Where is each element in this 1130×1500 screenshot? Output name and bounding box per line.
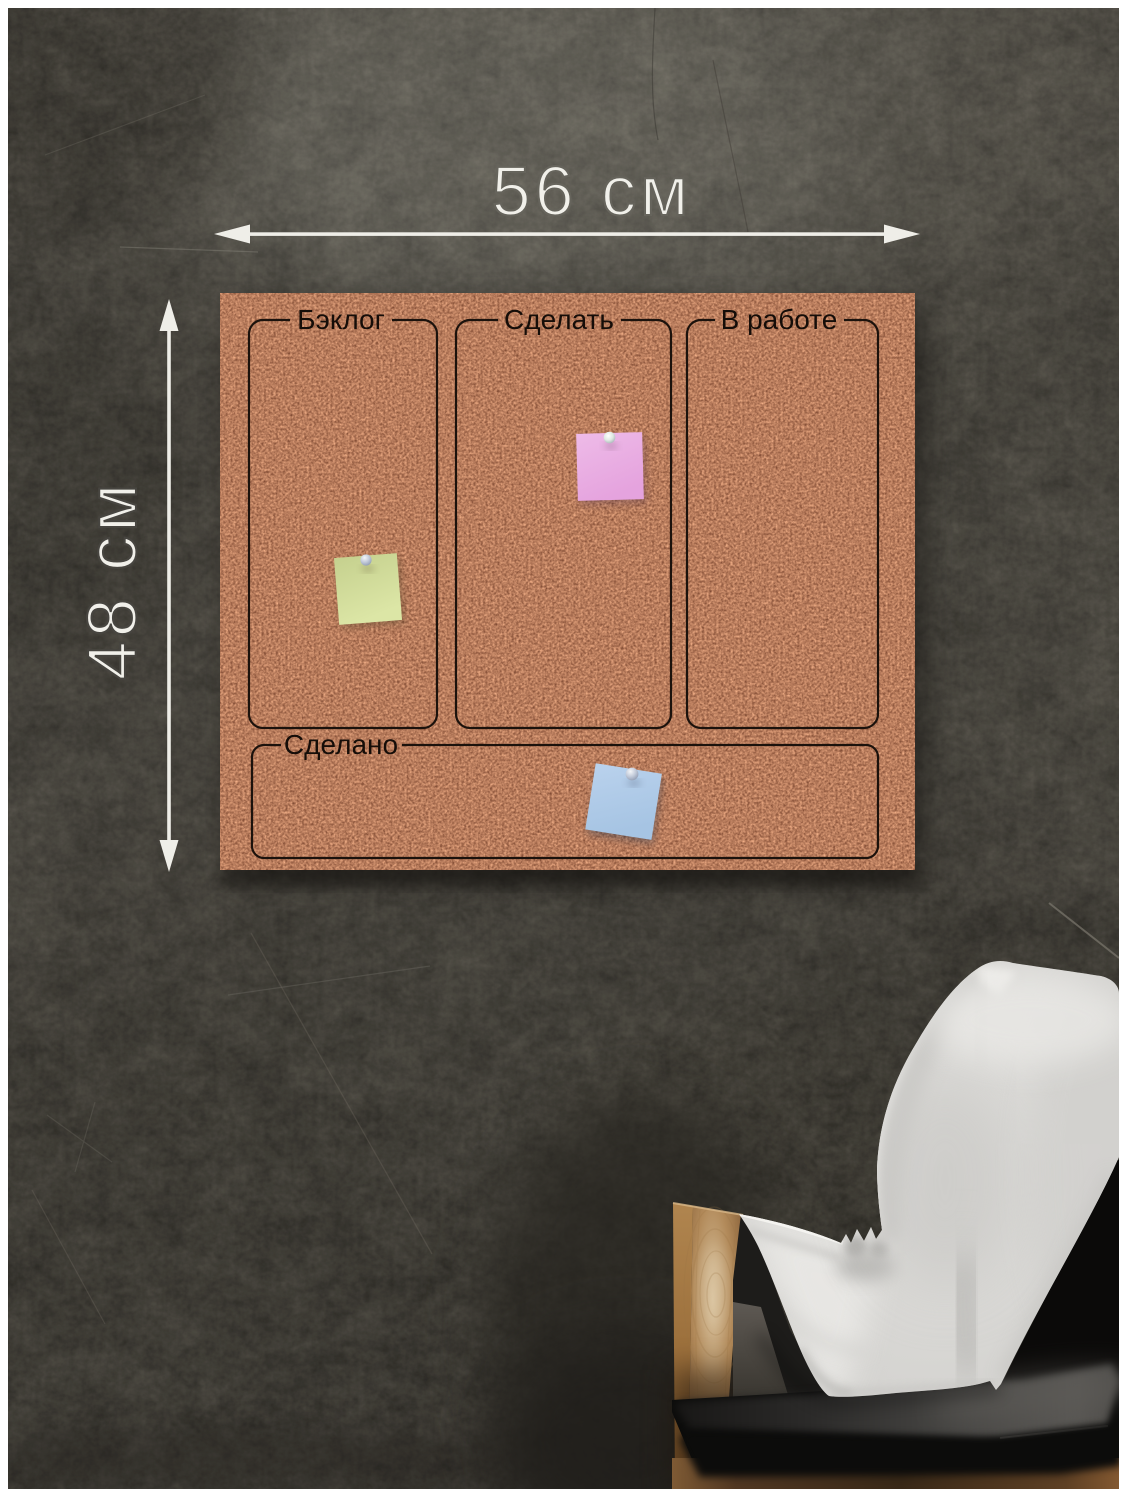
svg-text:Бэклог: Бэклог [297, 304, 385, 335]
svg-text:Сделать: Сделать [504, 304, 614, 335]
svg-text:56 см: 56 см [492, 152, 692, 230]
svg-text:В работе: В работе [721, 304, 838, 335]
svg-text:Сделано: Сделано [284, 729, 398, 760]
svg-text:48 см: 48 см [73, 480, 151, 680]
